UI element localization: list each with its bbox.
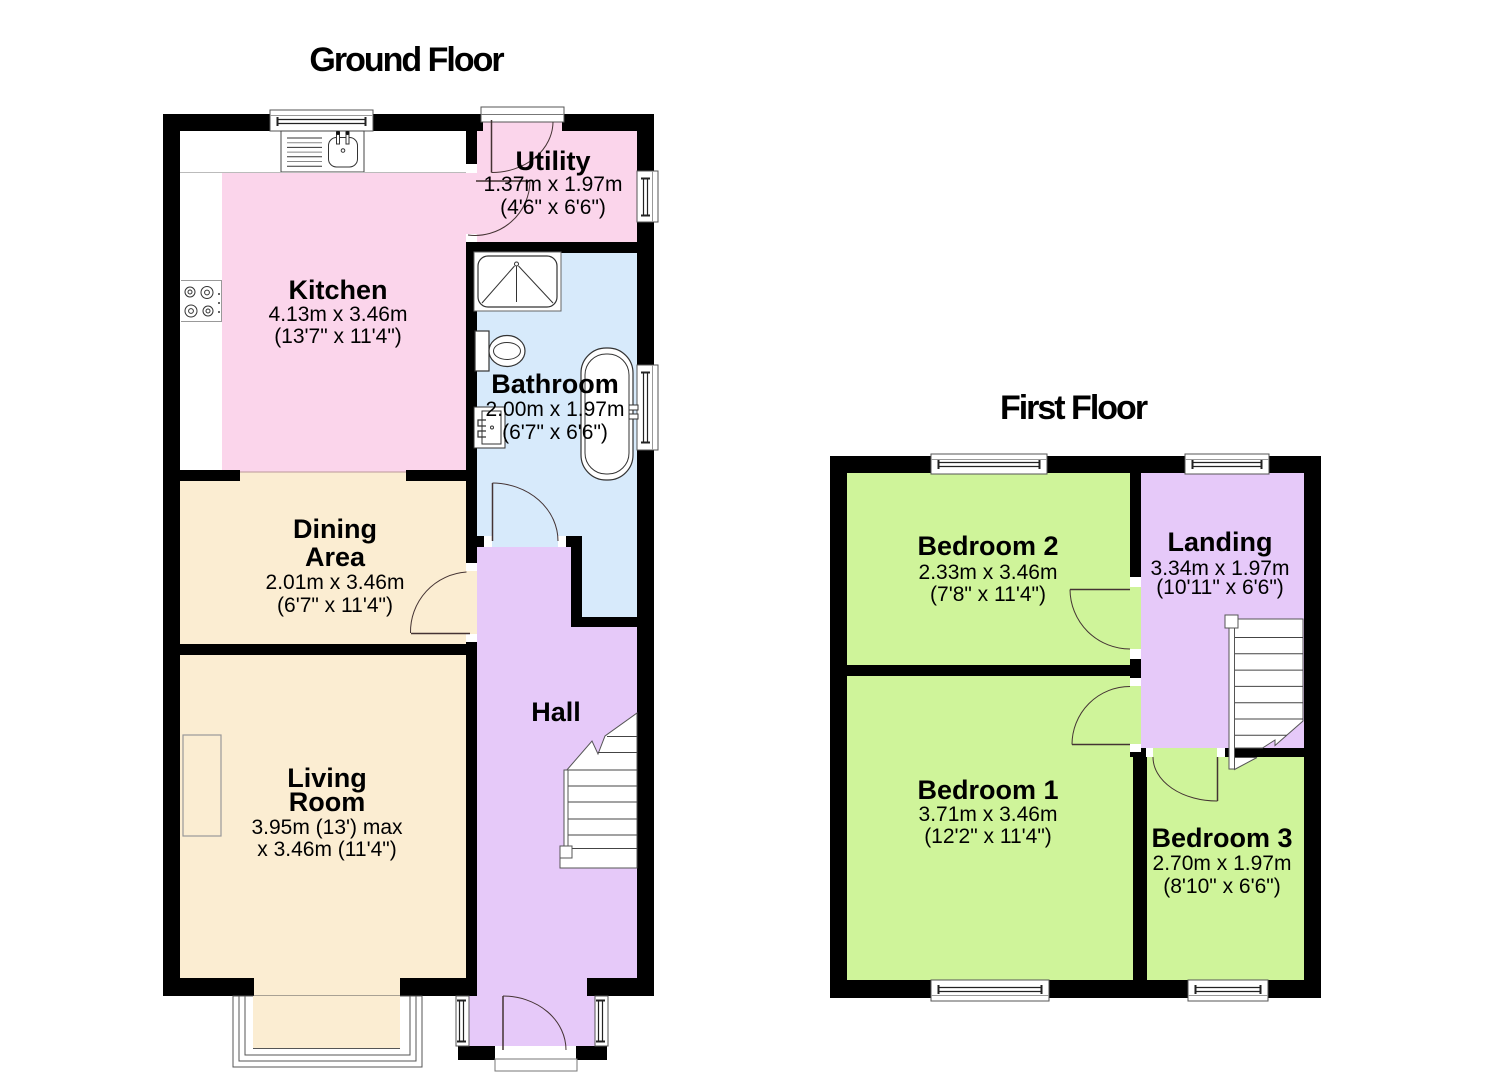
svg-text:4.13m x 3.46m: 4.13m x 3.46m — [269, 303, 408, 326]
svg-text:(4'6" x 6'6"): (4'6" x 6'6") — [500, 196, 606, 219]
svg-text:Kitchen: Kitchen — [288, 275, 387, 305]
svg-text:Room: Room — [289, 787, 366, 817]
svg-text:(7'8" x 11'4"): (7'8" x 11'4") — [930, 583, 1046, 606]
svg-text:2.70m x 1.97m: 2.70m x 1.97m — [1153, 852, 1292, 875]
svg-text:Ground Floor: Ground Floor — [309, 41, 504, 79]
svg-text:3.71m x 3.46m: 3.71m x 3.46m — [919, 803, 1058, 826]
svg-text:x 3.46m (11'4"): x 3.46m (11'4") — [257, 838, 396, 861]
svg-text:Bathroom: Bathroom — [491, 369, 619, 399]
svg-text:2.00m x 1.97m: 2.00m x 1.97m — [486, 398, 625, 421]
svg-text:First Floor: First Floor — [1000, 389, 1148, 427]
svg-text:(13'7" x 11'4"): (13'7" x 11'4") — [274, 325, 402, 348]
svg-text:(12'2" x 11'4"): (12'2" x 11'4") — [924, 825, 1052, 848]
svg-text:(6'7" x 11'4"): (6'7" x 11'4") — [277, 594, 393, 617]
svg-text:3.95m (13') max: 3.95m (13') max — [251, 816, 403, 839]
svg-text:Bedroom 3: Bedroom 3 — [1151, 823, 1292, 853]
svg-text:Landing: Landing — [1168, 527, 1273, 557]
svg-text:Bedroom 2: Bedroom 2 — [917, 531, 1058, 561]
svg-text:Hall: Hall — [531, 697, 581, 727]
svg-text:Bedroom 1: Bedroom 1 — [917, 775, 1058, 805]
svg-text:2.01m x 3.46m: 2.01m x 3.46m — [266, 571, 405, 594]
svg-text:(10'11" x 6'6"): (10'11" x 6'6") — [1156, 576, 1284, 599]
svg-text:1.37m x 1.97m: 1.37m x 1.97m — [484, 173, 623, 196]
svg-text:Utility: Utility — [515, 146, 590, 176]
svg-text:Area: Area — [305, 542, 366, 572]
svg-text:Dining: Dining — [293, 514, 377, 544]
svg-text:(6'7" x 6'6"): (6'7" x 6'6") — [502, 421, 608, 444]
svg-text:2.33m x 3.46m: 2.33m x 3.46m — [919, 561, 1058, 584]
svg-text:(8'10" x 6'6"): (8'10" x 6'6") — [1163, 875, 1280, 898]
